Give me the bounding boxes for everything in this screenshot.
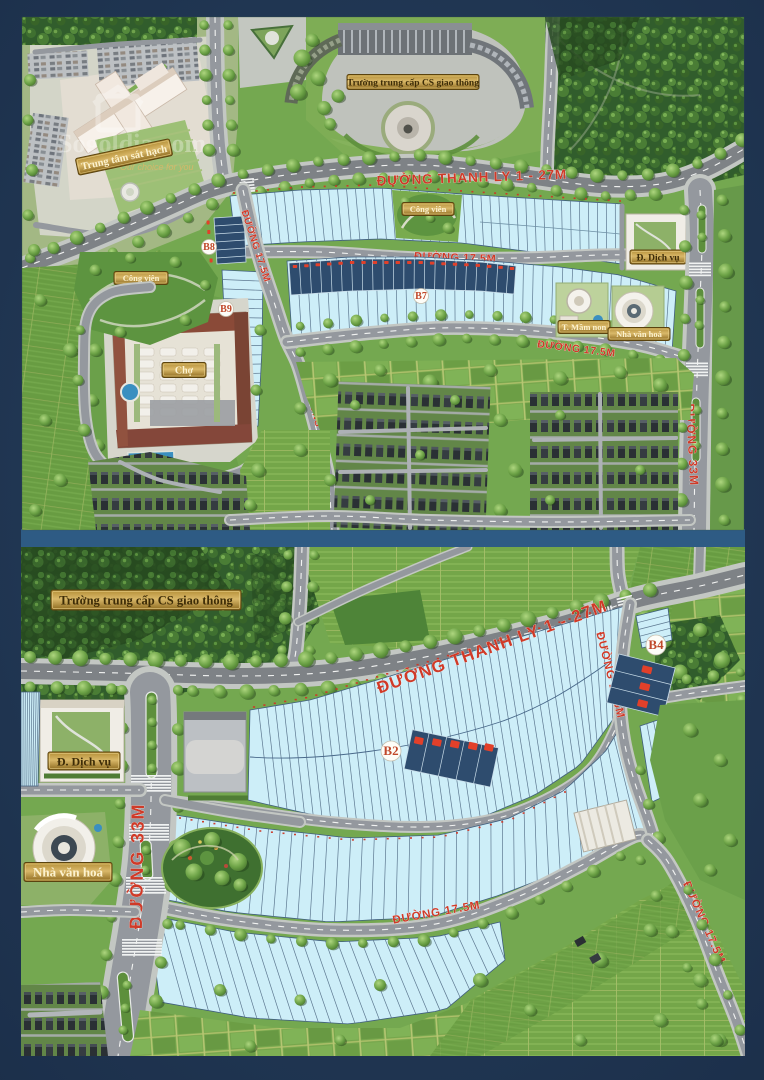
svg-text:T. Mầm non: T. Mầm non bbox=[562, 322, 607, 332]
svg-text:Trường trung cấp CS giao thông: Trường trung cấp CS giao thông bbox=[347, 77, 479, 88]
svg-text:Nhà văn hoá: Nhà văn hoá bbox=[616, 329, 663, 339]
svg-text:Đ. Dịch vụ: Đ. Dịch vụ bbox=[57, 754, 112, 768]
svg-text:B8: B8 bbox=[203, 242, 215, 253]
svg-text:B2: B2 bbox=[383, 743, 398, 758]
svg-text:B9: B9 bbox=[220, 304, 232, 315]
svg-text:Đ. Dịch vụ: Đ. Dịch vụ bbox=[636, 253, 680, 263]
svg-text:Nhà văn hoá: Nhà văn hoá bbox=[33, 865, 104, 880]
svg-text:Công viên: Công viên bbox=[123, 273, 160, 283]
svg-text:B7: B7 bbox=[415, 291, 427, 302]
svg-text:Trường trung cấp CS giao thông: Trường trung cấp CS giao thông bbox=[59, 594, 233, 608]
svg-text:Công viên: Công viên bbox=[410, 204, 447, 214]
svg-text:Chợ: Chợ bbox=[175, 366, 194, 377]
svg-text:B4: B4 bbox=[648, 637, 664, 652]
